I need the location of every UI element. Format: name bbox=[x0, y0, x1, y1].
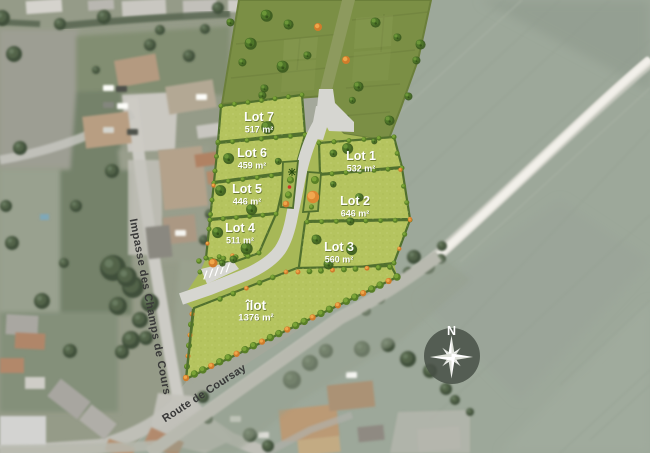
svg-text:îlot: îlot bbox=[245, 298, 267, 313]
svg-text:Lot 2: Lot 2 bbox=[340, 194, 370, 208]
svg-text:Lot 3: Lot 3 bbox=[324, 240, 354, 254]
svg-text:446 m²: 446 m² bbox=[233, 197, 262, 207]
svg-text:511 m²: 511 m² bbox=[226, 236, 254, 246]
svg-text:1376 m²: 1376 m² bbox=[238, 313, 273, 324]
svg-text:Lot 6: Lot 6 bbox=[237, 146, 267, 160]
svg-text:560 m²: 560 m² bbox=[325, 255, 354, 265]
svg-text:Lot 4: Lot 4 bbox=[225, 221, 255, 235]
svg-text:N: N bbox=[447, 324, 456, 338]
svg-text:Lot 5: Lot 5 bbox=[232, 182, 262, 196]
svg-text:646 m²: 646 m² bbox=[341, 209, 370, 219]
svg-text:459 m²: 459 m² bbox=[238, 161, 267, 171]
svg-text:517 m²: 517 m² bbox=[245, 125, 274, 135]
svg-text:532 m²: 532 m² bbox=[347, 164, 376, 174]
svg-text:Lot 1: Lot 1 bbox=[346, 149, 376, 163]
svg-text:Lot 7: Lot 7 bbox=[244, 110, 274, 124]
